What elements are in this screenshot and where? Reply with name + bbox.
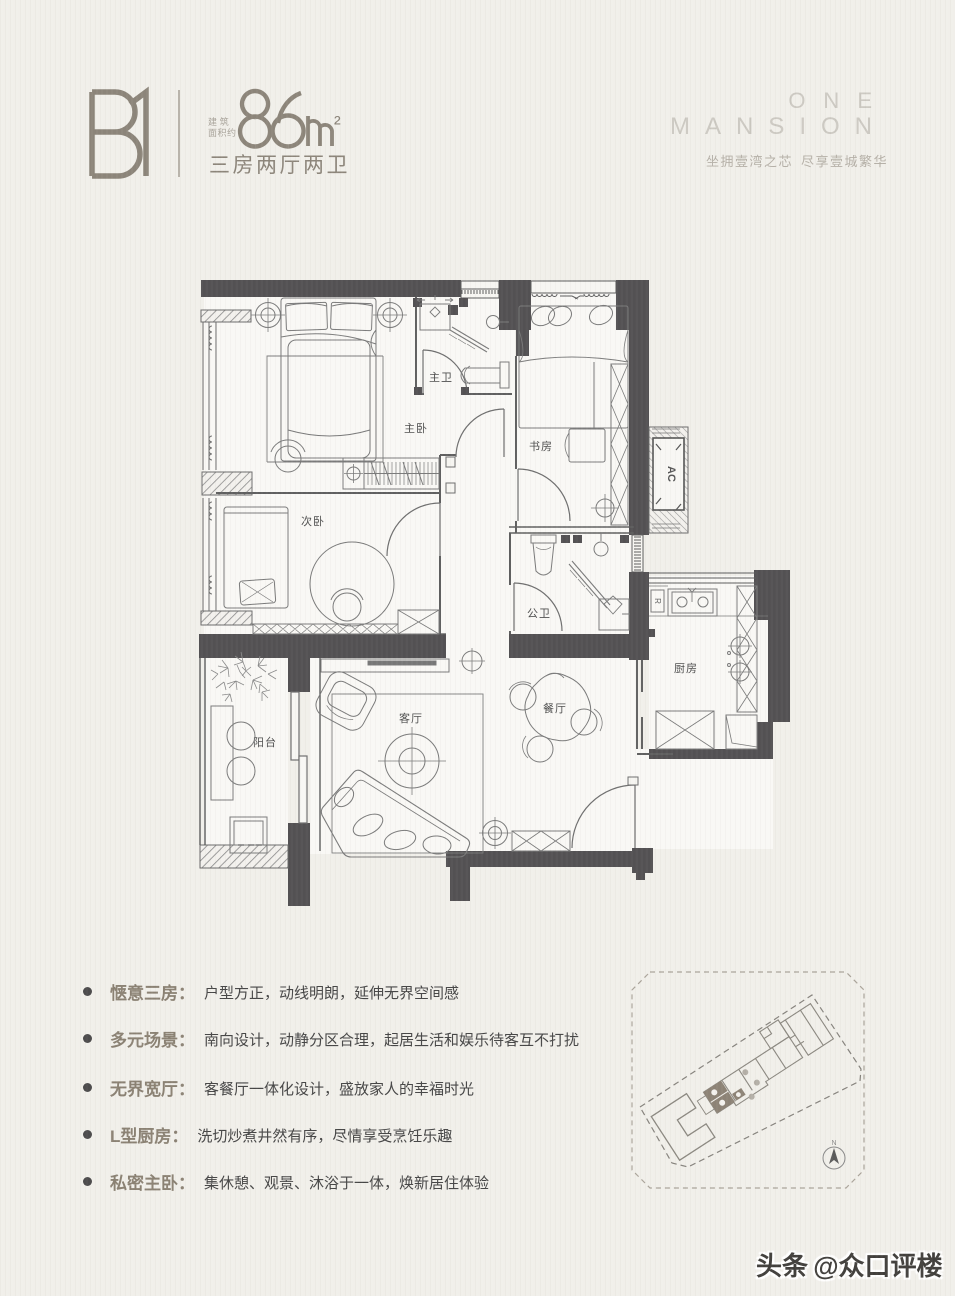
svg-text:主卧: 主卧 bbox=[404, 422, 428, 435]
svg-text:次卧: 次卧 bbox=[301, 514, 325, 528]
svg-text:公卫: 公卫 bbox=[527, 608, 551, 620]
svg-text:R: R bbox=[653, 598, 662, 604]
svg-text:²: ² bbox=[334, 113, 341, 135]
svg-text:餐厅: 餐厅 bbox=[543, 701, 567, 715]
svg-text:AC: AC bbox=[665, 466, 677, 482]
svg-text:客厅: 客厅 bbox=[399, 711, 423, 725]
svg-text:书房: 书房 bbox=[529, 440, 553, 453]
svg-text:阳台: 阳台 bbox=[253, 735, 277, 749]
svg-text:主卫: 主卫 bbox=[429, 371, 453, 384]
svg-text:厨房: 厨房 bbox=[674, 662, 698, 675]
